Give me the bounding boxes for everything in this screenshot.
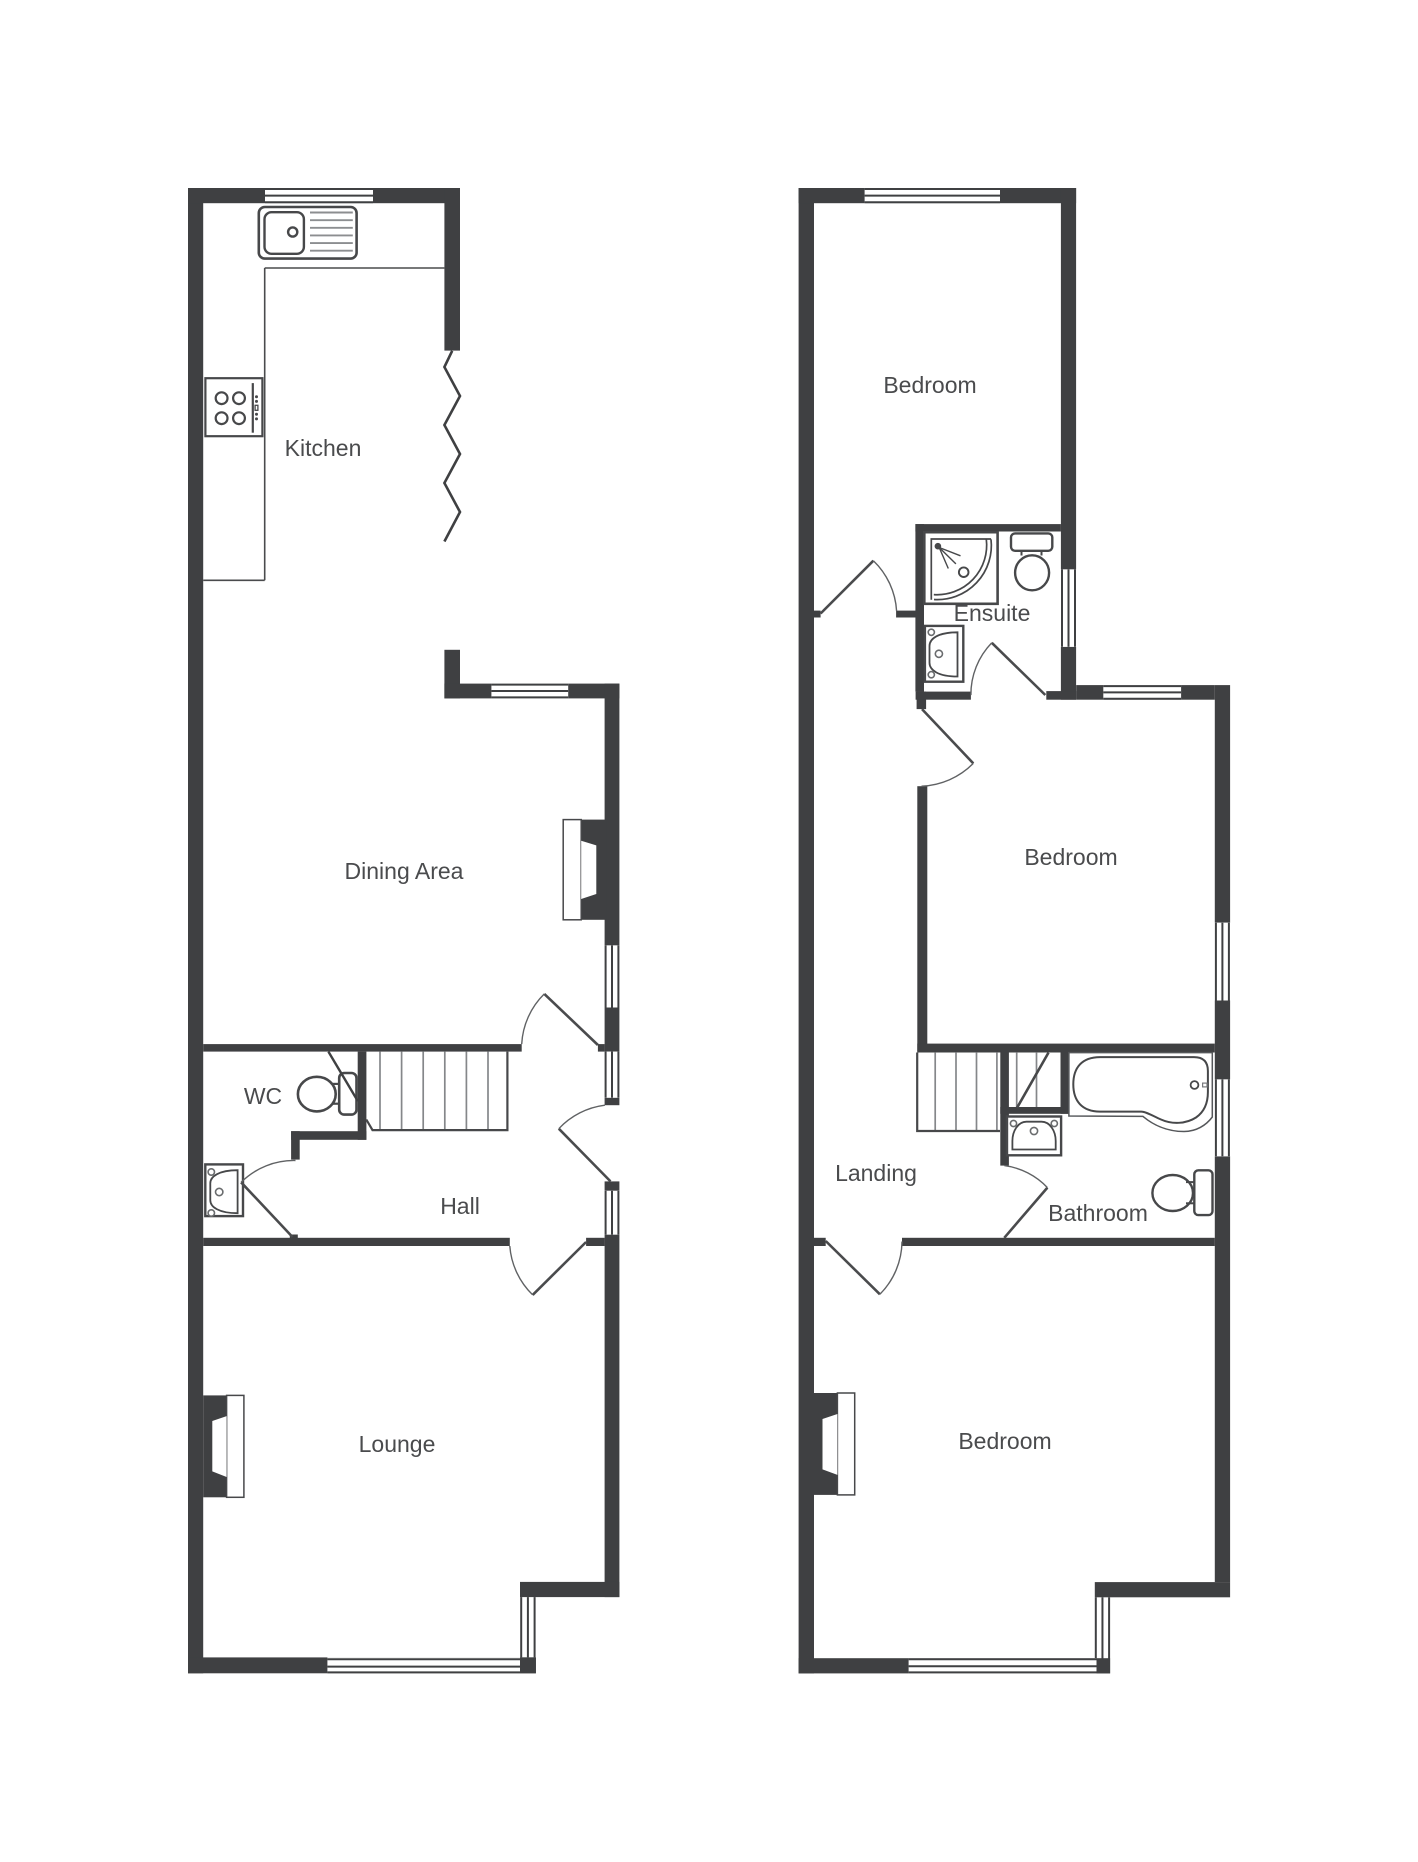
svg-text:Bedroom: Bedroom bbox=[1024, 844, 1117, 870]
svg-text:Bathroom: Bathroom bbox=[1048, 1200, 1148, 1226]
svg-text:Lounge: Lounge bbox=[359, 1431, 436, 1457]
svg-text:Landing: Landing bbox=[835, 1160, 917, 1186]
svg-text:Hall: Hall bbox=[440, 1193, 480, 1219]
svg-text:Ensuite: Ensuite bbox=[954, 600, 1031, 626]
svg-text:WC: WC bbox=[244, 1083, 282, 1109]
svg-text:Bedroom: Bedroom bbox=[883, 372, 976, 398]
svg-text:Kitchen: Kitchen bbox=[285, 435, 362, 461]
svg-text:Dining Area: Dining Area bbox=[345, 858, 464, 884]
svg-text:Bedroom: Bedroom bbox=[958, 1428, 1051, 1454]
